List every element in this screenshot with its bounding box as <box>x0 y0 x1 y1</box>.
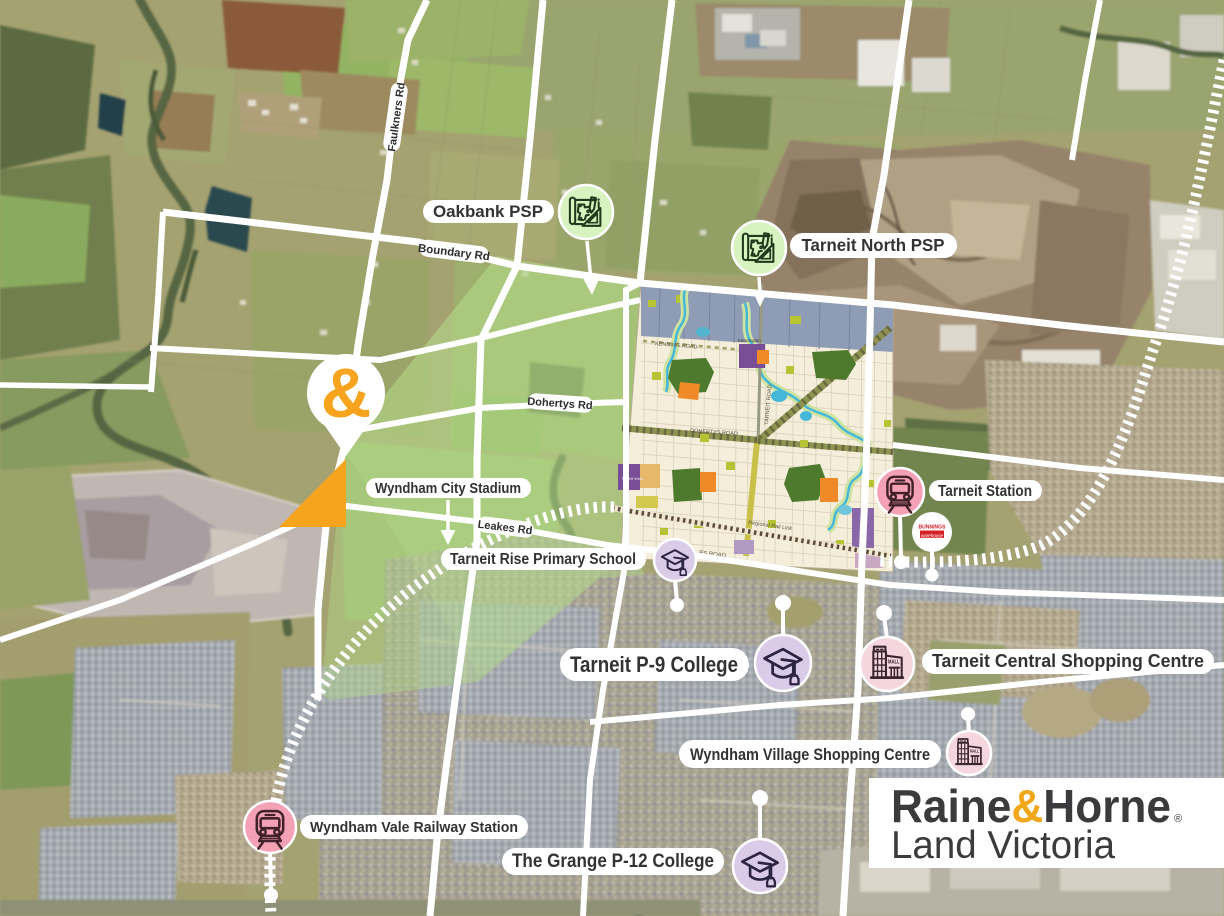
svg-text:Tarneit Central Shopping Centr: Tarneit Central Shopping Centre <box>932 651 1204 671</box>
svg-text:Tarneit P-9 College: Tarneit P-9 College <box>570 652 738 677</box>
svg-text:®: ® <box>1174 813 1182 825</box>
svg-text:&: & <box>321 354 372 432</box>
svg-text:Wyndham City Stadium: Wyndham City Stadium <box>375 481 521 497</box>
svg-text:Land Victoria: Land Victoria <box>891 824 1115 867</box>
svg-text:Tarneit North PSP: Tarneit North PSP <box>802 235 945 255</box>
svg-text:Wyndham Village Shopping Centr: Wyndham Village Shopping Centre <box>690 745 930 764</box>
svg-text:Wyndham Vale Railway Station: Wyndham Vale Railway Station <box>310 819 518 836</box>
svg-text:Kennington: Kennington <box>738 338 761 343</box>
svg-text:warehouse: warehouse <box>921 534 943 540</box>
svg-text:BUNNINGS: BUNNINGS <box>919 525 946 531</box>
svg-text:Tarneit Station: Tarneit Station <box>938 483 1032 500</box>
svg-text:Oakbank PSP: Oakbank PSP <box>433 202 543 221</box>
svg-text:The Grange P-12 College: The Grange P-12 College <box>512 851 714 872</box>
svg-text:Tarneit Rise Primary School: Tarneit Rise Primary School <box>450 551 636 568</box>
